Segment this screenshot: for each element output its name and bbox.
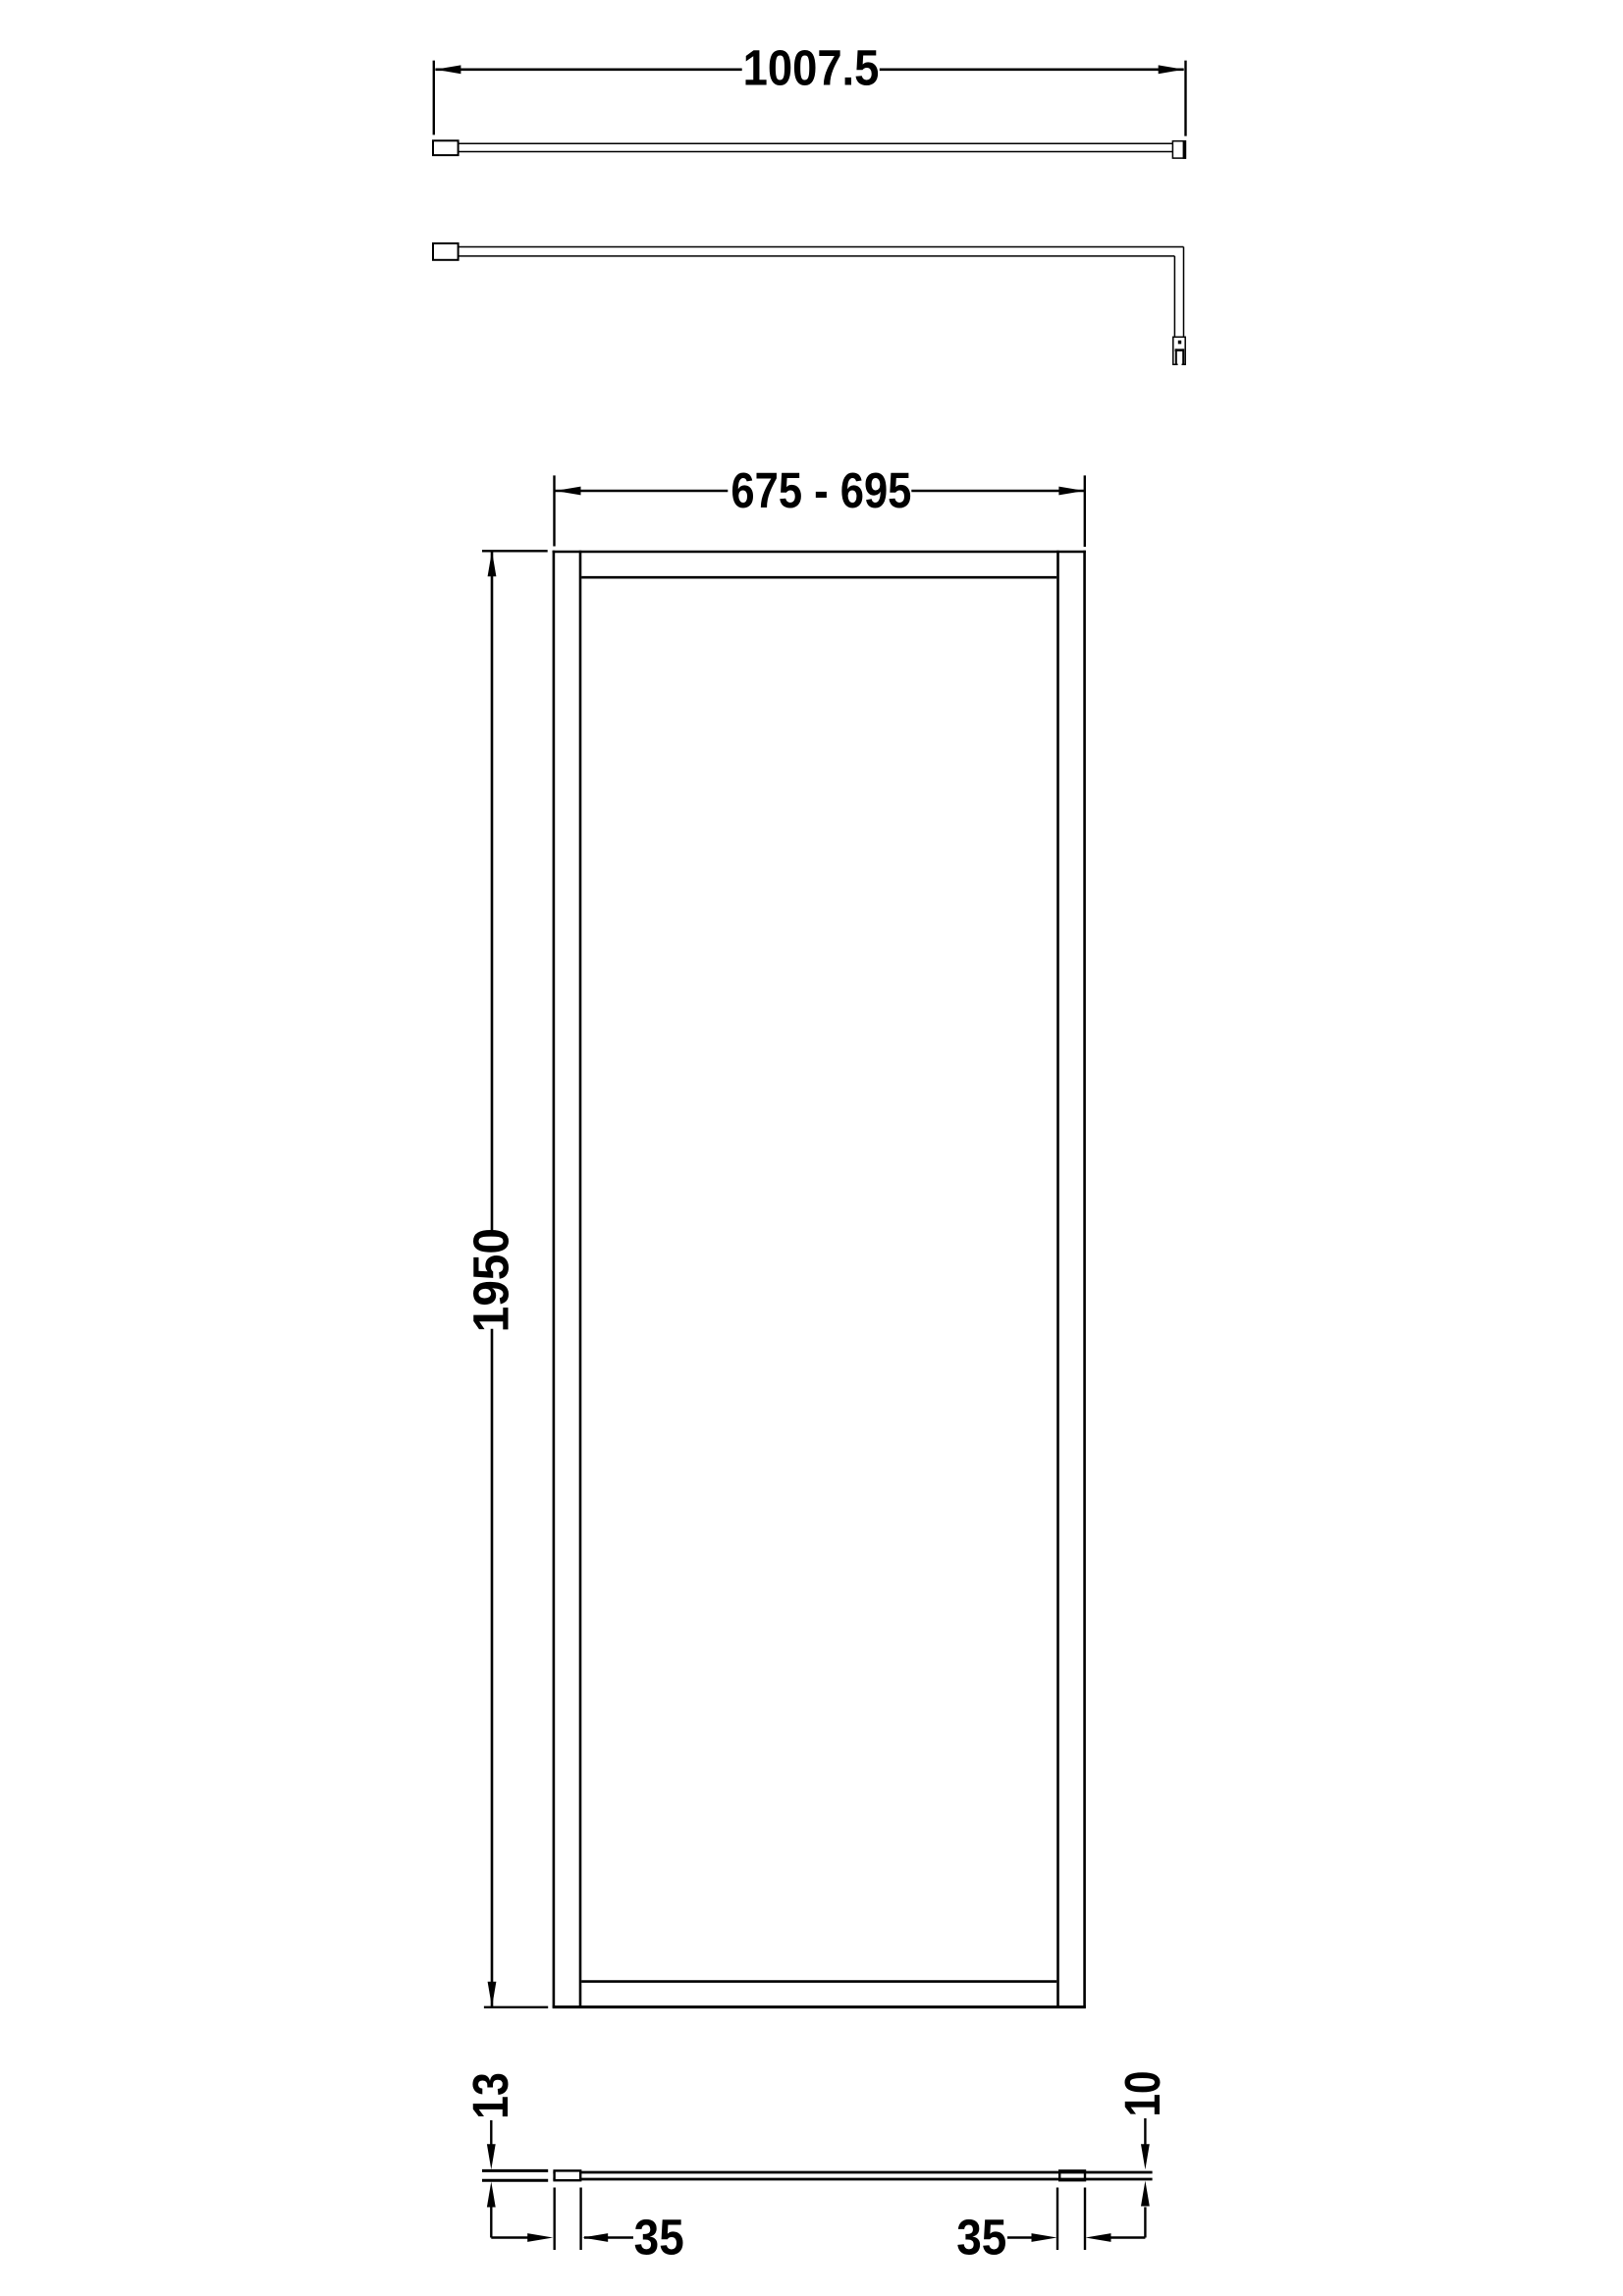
svg-text:13: 13	[461, 2072, 517, 2119]
svg-text:35: 35	[956, 2210, 1006, 2266]
svg-text:1950: 1950	[463, 1228, 519, 1332]
svg-text:10: 10	[1114, 2070, 1170, 2116]
svg-text:35: 35	[634, 2210, 684, 2266]
svg-text:675 - 695: 675 - 695	[730, 463, 911, 519]
svg-text:1007.5: 1007.5	[743, 40, 880, 96]
